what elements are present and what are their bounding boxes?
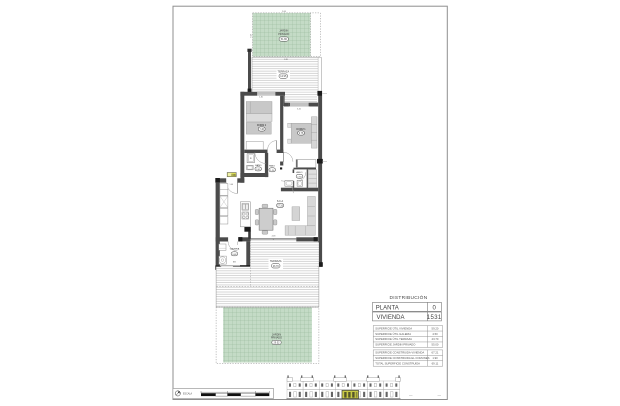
- svg-text:DORM 1: DORM 1: [296, 128, 306, 131]
- svg-text:1531: 1531: [231, 174, 237, 177]
- svg-text:DORM 2: DORM 2: [257, 124, 267, 127]
- svg-text:S.C.A: S.C.A: [277, 200, 284, 203]
- svg-text:2.06: 2.06: [282, 11, 286, 13]
- svg-text:SUPERFICIE JARDIN PRIVADO: SUPERFICIE JARDIN PRIVADO: [375, 343, 415, 347]
- svg-text:3.41: 3.41: [297, 109, 301, 111]
- svg-text:14.95: 14.95: [280, 75, 287, 78]
- svg-text:4.18: 4.18: [272, 236, 276, 238]
- svg-text:TERRAZA: TERRAZA: [270, 260, 282, 263]
- svg-text:GALERIA: GALERIA: [230, 248, 240, 251]
- svg-text:ESCALA: ESCALA: [183, 393, 193, 396]
- svg-text:9.76: 9.76: [299, 133, 304, 135]
- svg-text:55.00: 55.00: [432, 343, 439, 347]
- svg-text:1.90: 1.90: [432, 356, 438, 360]
- svg-text:PLANTA: PLANTA: [376, 305, 399, 311]
- svg-text:PASO: PASO: [269, 164, 275, 167]
- svg-text:7.46: 7.46: [259, 129, 264, 131]
- svg-text:59.20: 59.20: [432, 326, 439, 330]
- svg-text:5.85: 5.85: [284, 59, 288, 61]
- svg-text:4.50: 4.50: [432, 332, 438, 336]
- svg-text:BAÑO: BAÑO: [255, 164, 261, 167]
- svg-text:43.70: 43.70: [432, 337, 439, 341]
- svg-text:VIVIENDA: VIVIENDA: [377, 315, 405, 321]
- svg-text:1.40: 1.40: [259, 97, 263, 99]
- svg-text:29.52: 29.52: [274, 342, 281, 345]
- svg-text:PRIVADO: PRIVADO: [278, 33, 289, 36]
- svg-text:TOTAL SUPERFICIE CONSTRUIDA: TOTAL SUPERFICIE CONSTRUIDA: [375, 362, 420, 366]
- svg-text:43.70: 43.70: [273, 265, 280, 268]
- svg-text:27.10: 27.10: [277, 206, 283, 208]
- svg-text:ASEO: ASEO: [296, 171, 302, 174]
- svg-text:1531: 1531: [427, 315, 442, 321]
- svg-text:SUPERFICIE CONSTRUIDA VIVIENDA: SUPERFICIE CONSTRUIDA VIVIENDA: [375, 351, 424, 355]
- svg-text:SUPERFICIE CONSTRUIDA EL COMUN: SUPERFICIE CONSTRUIDA EL COMUNES: [375, 356, 429, 360]
- svg-text:DISTRIBUCIÓN: DISTRIBUCIÓN: [390, 294, 428, 301]
- svg-text:1.46: 1.46: [230, 184, 234, 186]
- svg-text:69.11: 69.11: [432, 362, 439, 366]
- svg-text:67.21: 67.21: [432, 351, 439, 355]
- svg-text:PRIVADO: PRIVADO: [271, 337, 282, 340]
- svg-text:TERRAZA: TERRAZA: [277, 71, 289, 74]
- svg-text:7.08: 7.08: [251, 34, 253, 38]
- svg-text:51.86: 51.86: [281, 38, 288, 41]
